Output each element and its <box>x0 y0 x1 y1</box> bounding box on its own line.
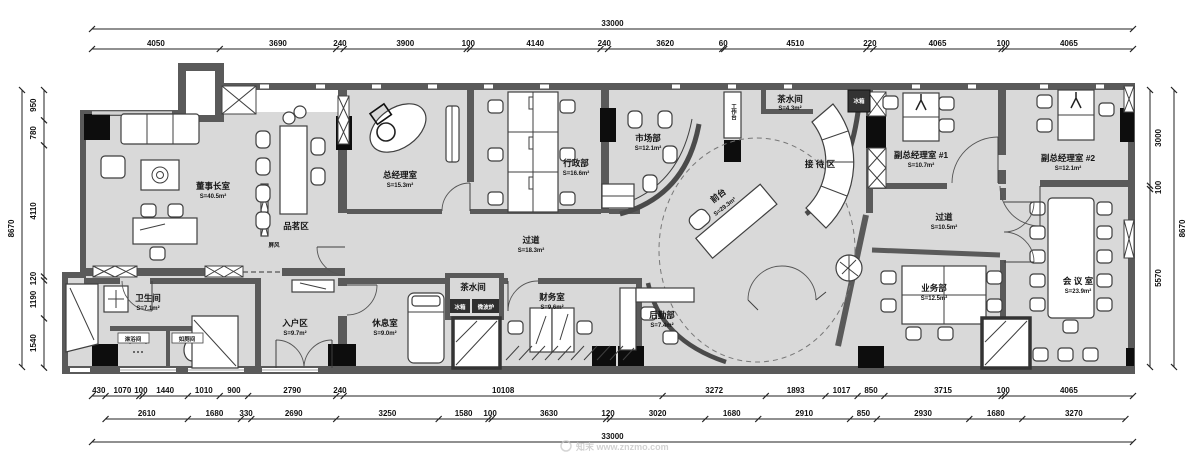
room-area-entry: S=9.7m² <box>283 330 306 337</box>
dim-label: 100 <box>483 409 497 418</box>
dim-label: 8670 <box>7 219 16 237</box>
dim-label: 780 <box>29 126 38 140</box>
room-label-vice-gm1: 副总经理室 #1 <box>894 150 949 160</box>
dim-label: 3250 <box>379 409 397 418</box>
label-fridge2: 冰箱 <box>454 303 466 311</box>
dim-label: 3020 <box>649 409 667 418</box>
room-label-bathroom: 卫生间 <box>135 293 161 303</box>
room-area-business: S=12.5m² <box>921 295 948 302</box>
dim-label: 1017 <box>833 386 851 395</box>
label-fridge1: 冰箱 <box>853 97 865 105</box>
room-area-admin: S=16.6m² <box>563 170 590 177</box>
room-label-shower: 淋浴间 <box>125 335 142 343</box>
dim-label: 33000 <box>601 432 624 441</box>
dim-label: 100 <box>134 386 148 395</box>
room-area-bathroom: S=7.1m² <box>136 305 159 312</box>
watermark-text: 知末 www.znzmo.com <box>575 441 669 452</box>
room-area-finance: S=9.6m² <box>540 304 563 311</box>
label-screen: 屏风 <box>268 241 280 249</box>
floor-plan-svg: 董事长室 S=40.5m² 品茗区 屏风 卫生间 S=7.1m² 淋浴间 如厕间… <box>0 0 1200 458</box>
floor-plan-page: 董事长室 S=40.5m² 品茗区 屏风 卫生间 S=7.1m² 淋浴间 如厕间… <box>0 0 1200 458</box>
dim-label: 220 <box>863 39 877 48</box>
dim-label: 3630 <box>540 409 558 418</box>
room-area-logistics: S=7.4m² <box>650 322 673 329</box>
room-label-business: 业务部 <box>921 283 947 293</box>
dim-label: 850 <box>857 409 871 418</box>
dim-label: 430 <box>92 386 106 395</box>
dim-label: 3900 <box>396 39 414 48</box>
dim-label: 1680 <box>987 409 1005 418</box>
dim-label: 3690 <box>269 39 287 48</box>
room-label-finance: 财务室 <box>538 292 565 302</box>
dim-label: 4050 <box>147 39 165 48</box>
dim-label: 950 <box>29 98 38 112</box>
dim-label: 4510 <box>786 39 804 48</box>
dim-label: 1070 <box>114 386 132 395</box>
room-label-reception: 接 待 区 <box>805 159 836 169</box>
room-label-tea-tasting: 品茗区 <box>283 221 309 231</box>
dim-label: 100 <box>997 386 1011 395</box>
room-label-vice-gm2: 副总经理室 #2 <box>1041 153 1096 163</box>
dim-label: 240 <box>333 386 347 395</box>
room-label-pantry2: 茶水间 <box>459 282 486 292</box>
room-label-marketing: 市场部 <box>635 133 661 143</box>
dim-label: 1580 <box>455 409 473 418</box>
room-area-gm: S=15.3m² <box>387 182 414 189</box>
dim-label: 4110 <box>29 202 38 220</box>
room-area-chairman: S=40.5m² <box>200 193 227 200</box>
room-area-marketing: S=12.1m² <box>635 145 662 152</box>
dim-label: 1893 <box>787 386 805 395</box>
dim-label: 1680 <box>205 409 223 418</box>
dim-label: 3715 <box>934 386 952 395</box>
room-area-vice-gm1: S=10.7m² <box>908 162 935 169</box>
dim-label: 5570 <box>1154 269 1163 287</box>
dim-label: 100 <box>462 39 476 48</box>
dim-label: 2790 <box>283 386 301 395</box>
room-label-pantry1: 茶水间 <box>776 94 803 104</box>
dim-label: 3270 <box>1065 409 1083 418</box>
dim-label: 240 <box>333 39 347 48</box>
room-label-admin: 行政部 <box>562 158 589 168</box>
room-label-corridor2: 过道 <box>935 212 953 222</box>
room-label-logistics: 后勤部 <box>649 310 675 320</box>
dim-label: 120 <box>601 409 615 418</box>
dim-label: 1190 <box>29 290 38 308</box>
room-area-corridor1: S=18.3m² <box>518 247 545 254</box>
watermark: 知末 www.znzmo.com <box>561 441 669 452</box>
dim-label: 120 <box>29 271 38 285</box>
dim-label: 2690 <box>285 409 303 418</box>
room-area-meeting: S=23.9m² <box>1065 288 1092 295</box>
dim-label: 33000 <box>601 19 624 28</box>
dim-label: 100 <box>997 39 1011 48</box>
room-label-gm: 总经理室 <box>383 170 418 180</box>
dim-label: 900 <box>227 386 241 395</box>
dim-label: 240 <box>598 39 612 48</box>
room-label-corridor1: 过道 <box>522 235 540 245</box>
dim-label: 1440 <box>156 386 174 395</box>
room-area-lounge: S=9.0m² <box>373 330 396 337</box>
dim-label: 10108 <box>492 386 515 395</box>
dim-label: 850 <box>864 386 878 395</box>
dim-label: 8670 <box>1178 219 1187 237</box>
dim-label: 60 <box>719 39 728 48</box>
dim-label: 4065 <box>929 39 947 48</box>
dim-label: 3620 <box>656 39 674 48</box>
dim-label: 1010 <box>195 386 213 395</box>
room-label-lounge: 休息室 <box>371 318 398 328</box>
room-label-entry: 入户区 <box>281 318 308 328</box>
dim-label: 2930 <box>914 409 932 418</box>
room-label-meeting: 会 议 室 <box>1062 276 1094 286</box>
room-label-chairman: 董事长室 <box>196 181 231 191</box>
label-microwave: 微波炉 <box>477 303 495 311</box>
room-label-toilet: 如厕间 <box>179 335 196 343</box>
room-area-corridor2: S=10.5m² <box>931 224 958 231</box>
dim-label: 3272 <box>705 386 723 395</box>
dim-label: 1540 <box>29 334 38 352</box>
dim-label: 1680 <box>723 409 741 418</box>
dim-label: 100 <box>1154 180 1163 194</box>
room-area-pantry1: S=4.3m² <box>778 105 801 112</box>
dim-label: 4140 <box>526 39 544 48</box>
dim-label: 330 <box>239 409 253 418</box>
label-workbench: 工作台 <box>730 104 737 122</box>
dim-label: 2610 <box>138 409 156 418</box>
dim-label: 3000 <box>1154 128 1163 146</box>
dim-label: 4065 <box>1060 386 1078 395</box>
dim-label: 4065 <box>1060 39 1078 48</box>
dim-label: 2910 <box>795 409 813 418</box>
room-area-vice-gm2: S=12.1m² <box>1055 165 1082 172</box>
